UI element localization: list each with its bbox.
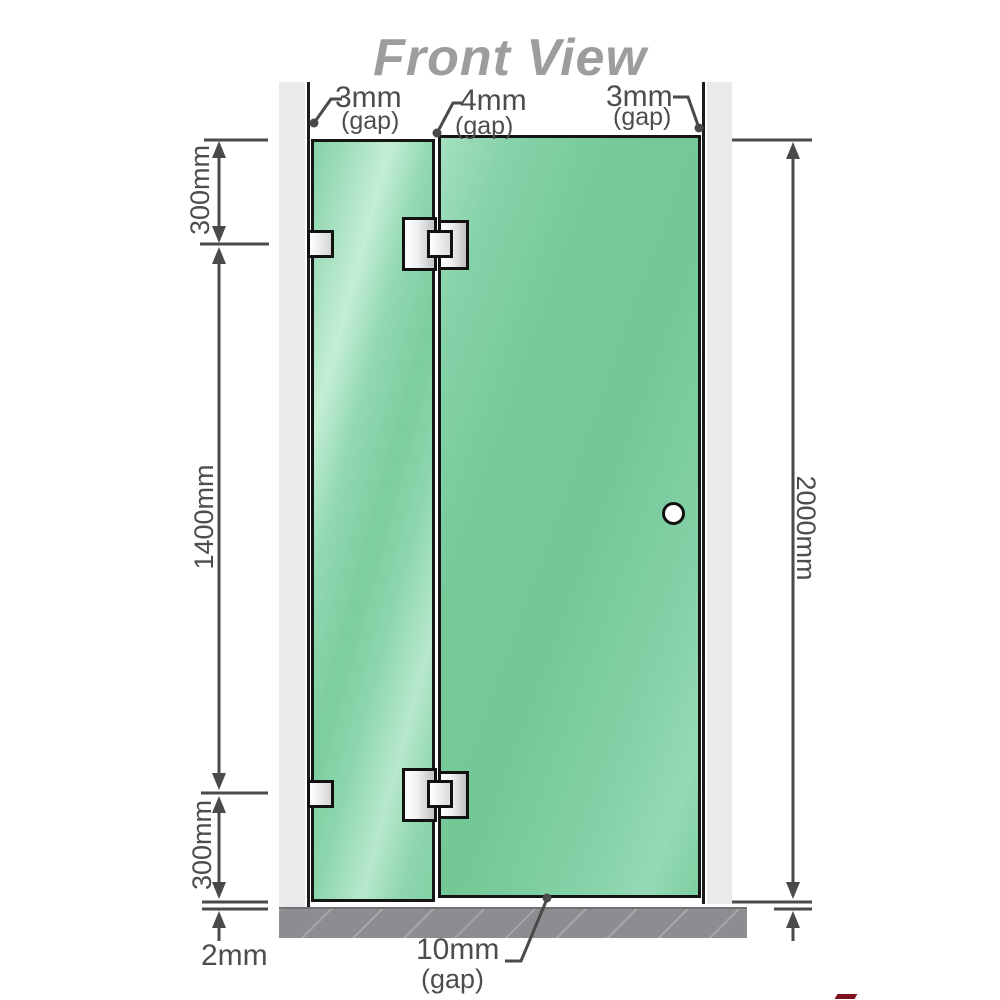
wall-bracket-top (307, 230, 334, 258)
page-title: Front View (350, 28, 670, 88)
hinge-top-barrel (427, 230, 453, 258)
hinge-bottom-barrel (427, 780, 453, 808)
dim-label-300mm-bottom: 300mm (187, 775, 217, 915)
dim-label-300mm-top: 300mm (185, 120, 215, 260)
dim-label-2000mm: 2000mm (791, 458, 821, 598)
gap-label-bottom-unit: (gap) (421, 966, 484, 993)
gap-label-bottom-value: 10mm (416, 935, 499, 965)
watermark-fragment (835, 994, 858, 999)
wall-edge-line-right (702, 82, 705, 904)
wall-right (707, 82, 732, 904)
wall-left (279, 82, 305, 908)
front-view-diagram: Front View (0, 0, 1000, 1000)
gap-label-top-middle-unit: (gap) (455, 114, 513, 139)
dim-label-2mm: 2mm (201, 941, 268, 971)
wall-bracket-bottom (307, 780, 334, 808)
door-knob (662, 502, 685, 525)
floor-base (279, 907, 747, 938)
dim-label-1400mm: 1400mm (189, 447, 219, 587)
gap-label-top-left-unit: (gap) (341, 109, 399, 134)
gap-label-top-right-unit: (gap) (613, 105, 671, 130)
